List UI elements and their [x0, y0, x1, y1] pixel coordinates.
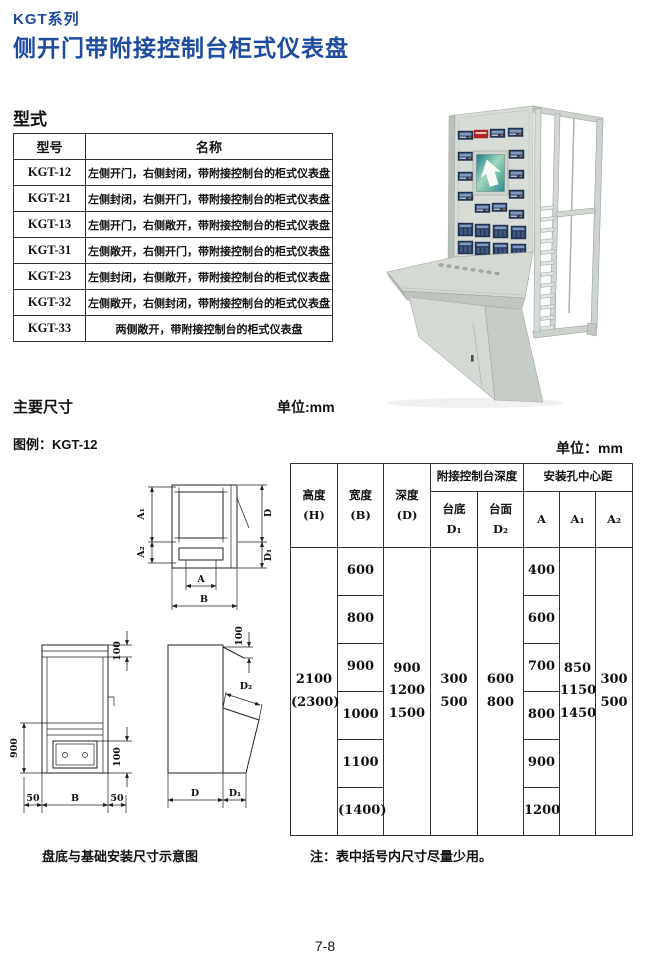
side-outline: [168, 645, 259, 773]
table-note: 注：表中括号内尺寸尽量少用。: [310, 846, 492, 865]
door-handle: [471, 355, 474, 362]
dim-label-a1: A₁: [136, 508, 147, 521]
a-cell: 700: [524, 644, 560, 692]
a1-col-header: A₁: [560, 492, 596, 548]
table-row: KGT-13左侧开门，右侧敞开，带附接控制台的柜式仪表盘: [14, 212, 333, 238]
model-cell: KGT-21: [14, 186, 86, 212]
dim-label-d1: D₁: [229, 788, 241, 799]
legend-label: 图例：KGT-12: [13, 434, 98, 453]
dim-label-900: 900: [10, 738, 20, 758]
pedestal: [409, 297, 543, 402]
name-cell: 两侧敞开，带附接控制台的柜式仪表盘: [86, 316, 333, 342]
table-row: 2100(2300) 600 90012001500 300500 600800…: [291, 548, 633, 596]
plan-outline: [172, 485, 249, 568]
mounting-holes-group-header: 安装孔中心距: [524, 464, 633, 492]
dim-label-50-right: 50: [110, 793, 124, 804]
unit-label-1: 单位:mm: [277, 397, 335, 417]
dimensions-table: 高度(H) 宽度(B) 深度(D) 附接控制台深度 安装孔中心距 台底D₁ 台面…: [290, 463, 633, 836]
a2-cell: 300500: [596, 548, 633, 836]
name-cell: 左侧敞开，右侧封闭，带附接控制台的柜式仪表盘: [86, 290, 333, 316]
dim-label-b: B: [200, 594, 208, 605]
d2-cell: 600800: [478, 548, 524, 836]
dim-label-100: 100: [234, 626, 245, 646]
height-cell: 2100(2300): [291, 548, 338, 836]
name-col-header: 名称: [86, 134, 333, 160]
width-col-header: 宽度(B): [338, 464, 384, 548]
name-cell: 左侧开门，右侧封闭，带附接控制台的柜式仪表盘: [86, 160, 333, 186]
dim-label-a: A: [196, 574, 205, 585]
table-row: KGT-31左侧敞开，右侧开门，带附接控制台的柜式仪表盘: [14, 238, 333, 264]
table-row: KGT-23左侧封闭，右侧敞开，带附接控制台的柜式仪表盘: [14, 264, 333, 290]
name-cell: 左侧封闭，右侧开门，带附接控制台的柜式仪表盘: [86, 186, 333, 212]
dim-label-d1: D₁: [263, 549, 274, 561]
a-cell: 800: [524, 692, 560, 740]
table-row: KGT-12左侧开门，右侧封闭，带附接控制台的柜式仪表盘: [14, 160, 333, 186]
a-cell: 900: [524, 740, 560, 788]
dim-label-a2: A₂: [136, 546, 147, 559]
type-section-heading: 型式: [13, 105, 47, 130]
plan-view-drawing: A₁ A₂ D D₁ A B: [110, 460, 290, 625]
model-cell: KGT-32: [14, 290, 86, 316]
a2-col-header: A₂: [596, 492, 633, 548]
front-outline: [42, 645, 114, 773]
console-top-header: 台面D₂: [478, 492, 524, 548]
depth-cell: 90012001500: [384, 548, 431, 836]
dim-label-d: D: [191, 788, 199, 799]
diagram-caption: 盘底与基础安装尺寸示意图: [42, 846, 198, 865]
width-cell: 800: [338, 596, 384, 644]
height-col-header: 高度(H): [291, 464, 338, 548]
width-cell: 1100: [338, 740, 384, 788]
side-dimensions: 100 D₂ D D₁: [168, 626, 262, 808]
width-cell: 900: [338, 644, 384, 692]
type-table: 型号 名称 KGT-12左侧开门，右侧封闭，带附接控制台的柜式仪表盘 KGT-2…: [13, 133, 333, 342]
dim-label-b: B: [71, 793, 79, 804]
name-cell: 左侧开门，右侧敞开，带附接控制台的柜式仪表盘: [86, 212, 333, 238]
model-cell: KGT-12: [14, 160, 86, 186]
unit-label-2: 单位：mm: [556, 438, 623, 458]
open-frame: [533, 106, 603, 338]
table-row: KGT-32左侧敞开，右侧封闭，带附接控制台的柜式仪表盘: [14, 290, 333, 316]
model-cell: KGT-13: [14, 212, 86, 238]
front-dimensions: 900 100 100 50 B 50: [10, 631, 132, 813]
catalog-page: KGT系列 侧开门带附接控制台柜式仪表盘 型式 型号 名称 KGT-12左侧开门…: [0, 0, 650, 977]
width-cell: (1400): [338, 788, 384, 836]
a-cell: 400: [524, 548, 560, 596]
dim-label-d: D: [263, 509, 274, 517]
a-cell: 600: [524, 596, 560, 644]
model-cell: KGT-33: [14, 316, 86, 342]
width-cell: 600: [338, 548, 384, 596]
dim-label-100-bottom: 100: [112, 747, 123, 767]
dims-section-heading: 主要尺寸: [13, 396, 73, 417]
console-desk: [387, 252, 533, 309]
page-title: 侧开门带附接控制台柜式仪表盘: [13, 29, 349, 63]
page-number: 7-8: [297, 938, 353, 954]
product-photo: [375, 85, 645, 410]
type-table-header-row: 型号 名称: [14, 134, 333, 160]
width-cell: 1000: [338, 692, 384, 740]
model-col-header: 型号: [14, 134, 86, 160]
front-view-drawing: 900 100 100 50 B 50: [10, 625, 160, 825]
a-cell: 1200: [524, 788, 560, 836]
name-cell: 左侧敞开，右侧开门，带附接控制台的柜式仪表盘: [86, 238, 333, 264]
dim-label-50-left: 50: [26, 793, 40, 804]
model-cell: KGT-31: [14, 238, 86, 264]
depth-col-header: 深度(D): [384, 464, 431, 548]
side-view-drawing: 100 D₂ D D₁: [160, 618, 305, 825]
table-row: KGT-33两侧敞开，带附接控制台的柜式仪表盘: [14, 316, 333, 342]
d1-cell: 300500: [431, 548, 478, 836]
dim-label-d2: D₂: [240, 681, 252, 692]
dim-label-100-top: 100: [112, 641, 123, 661]
name-cell: 左侧封闭，右侧敞开，带附接控制台的柜式仪表盘: [86, 264, 333, 290]
a-col-header: A: [524, 492, 560, 548]
series-label: KGT系列: [13, 8, 80, 29]
console-bottom-header: 台底D₁: [431, 492, 478, 548]
console-depth-group-header: 附接控制台深度: [431, 464, 524, 492]
dim-header-row-1: 高度(H) 宽度(B) 深度(D) 附接控制台深度 安装孔中心距: [291, 464, 633, 492]
a1-cell: 85011501450: [560, 548, 596, 836]
screen: [473, 151, 508, 195]
model-cell: KGT-23: [14, 264, 86, 290]
table-row: KGT-21左侧封闭，右侧开门，带附接控制台的柜式仪表盘: [14, 186, 333, 212]
